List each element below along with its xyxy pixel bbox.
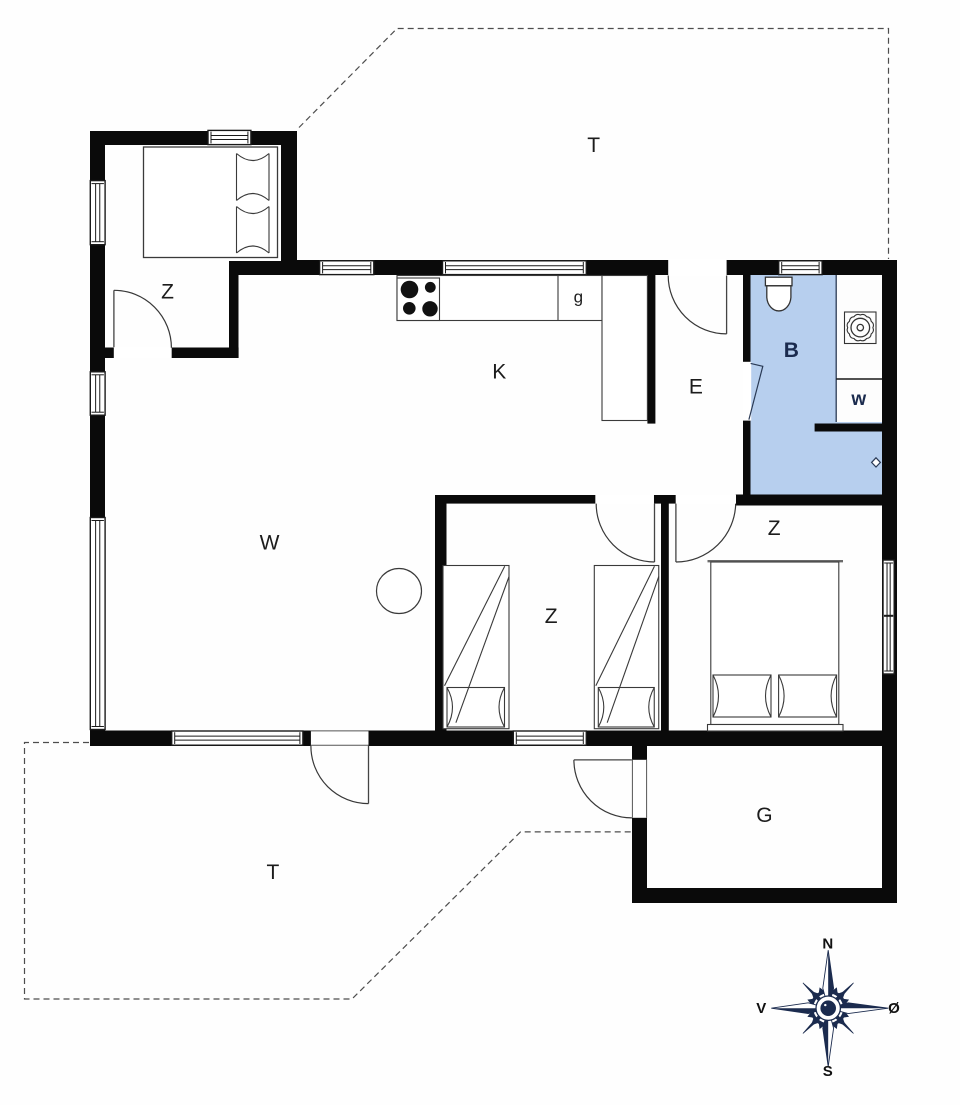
svg-text:w: w [850,389,866,410]
svg-text:g: g [574,288,583,307]
svg-text:G: G [756,804,772,827]
svg-text:K: K [492,361,506,384]
svg-text:W: W [260,532,280,555]
svg-text:Ø: Ø [888,1000,900,1017]
svg-text:T: T [587,134,600,157]
svg-text:V: V [756,1000,766,1017]
svg-text:Z: Z [545,605,558,628]
svg-text:T: T [266,861,279,884]
svg-text:Z: Z [161,281,174,304]
svg-text:S: S [823,1063,833,1080]
svg-text:N: N [822,936,833,953]
svg-text:E: E [689,376,703,399]
svg-text:B: B [784,339,799,362]
svg-text:Z: Z [768,517,781,540]
